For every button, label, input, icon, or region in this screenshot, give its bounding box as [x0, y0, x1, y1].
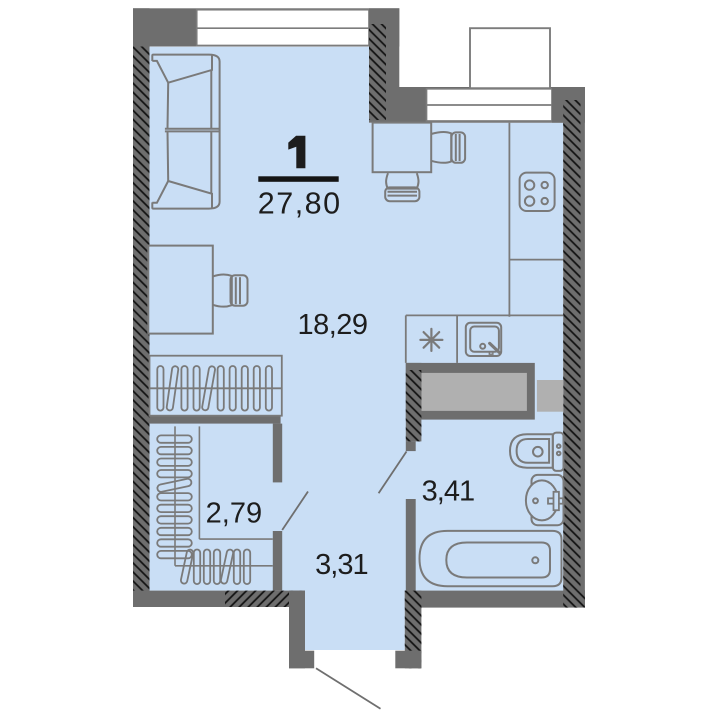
svg-text:2,79: 2,79	[206, 497, 262, 529]
svg-text:27,80: 27,80	[258, 186, 342, 220]
svg-text:18,29: 18,29	[297, 309, 367, 341]
svg-text:3,31: 3,31	[315, 549, 367, 581]
svg-text:3,41: 3,41	[422, 476, 474, 508]
